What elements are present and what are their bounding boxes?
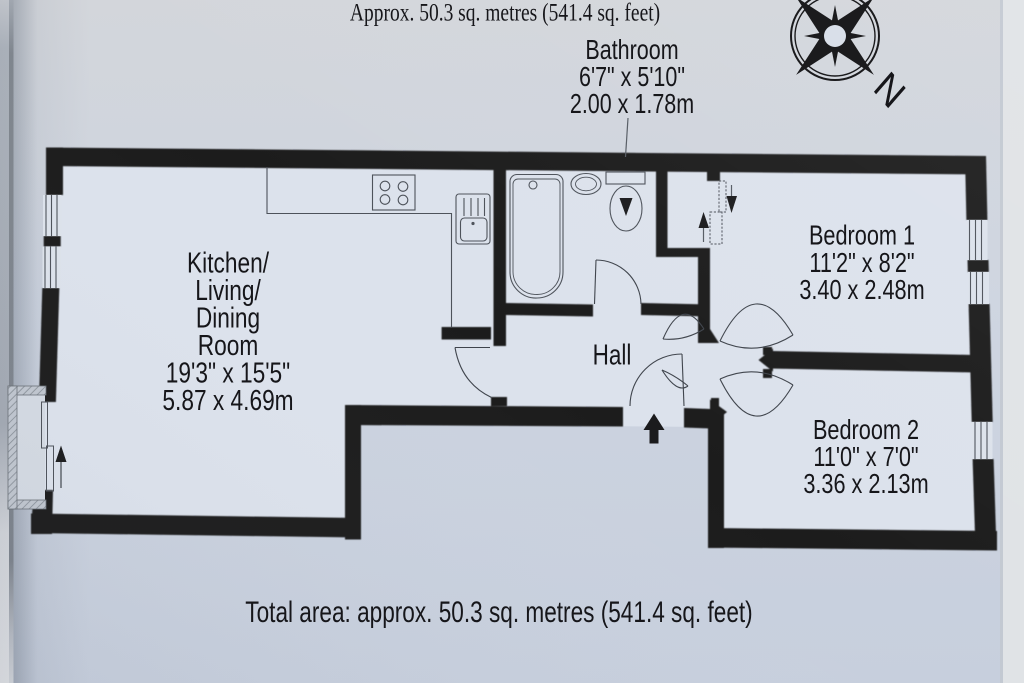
svg-text:6'7" x 5'10": 6'7" x 5'10" bbox=[579, 63, 685, 93]
svg-text:5.87 x 4.69m: 5.87 x 4.69m bbox=[162, 383, 293, 416]
svg-text:3.40 x 2.48m: 3.40 x 2.48m bbox=[799, 274, 924, 305]
svg-text:Hall: Hall bbox=[593, 340, 632, 371]
svg-text:Approx. 50.3 sq. metres (541.4: Approx. 50.3 sq. metres (541.4 sq. feet) bbox=[350, 0, 660, 26]
svg-text:Bathroom: Bathroom bbox=[585, 36, 678, 66]
svg-text:2.00 x 1.78m: 2.00 x 1.78m bbox=[570, 90, 694, 120]
svg-text:Total area: approx. 50.3 sq. m: Total area: approx. 50.3 sq. metres (541… bbox=[245, 595, 752, 629]
svg-text:3.36 x 2.13m: 3.36 x 2.13m bbox=[803, 468, 928, 499]
